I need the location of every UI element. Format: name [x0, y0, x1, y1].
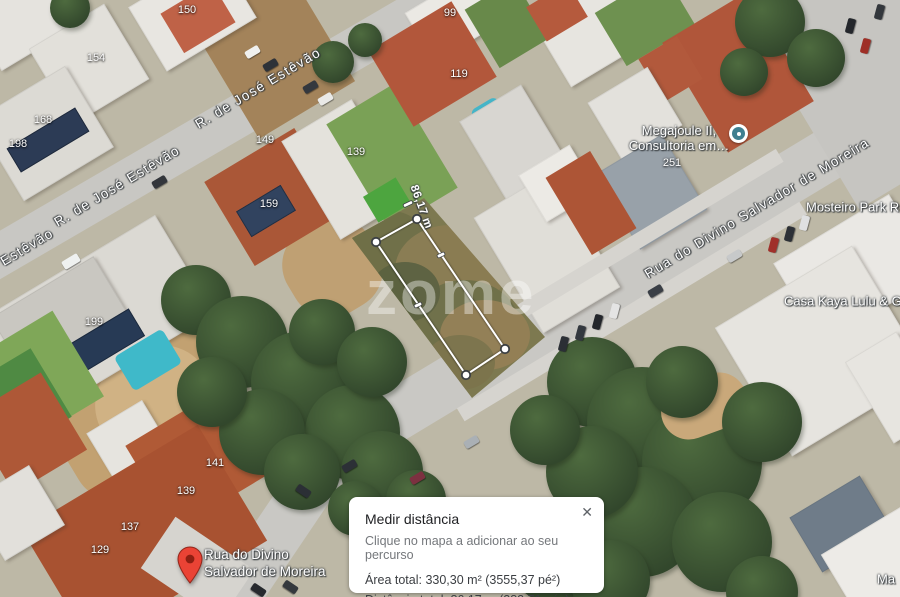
pin-address-line2: Salvador de Moreira [204, 563, 326, 580]
car [784, 226, 796, 243]
tree [787, 29, 845, 87]
panel-title: Medir distância [365, 511, 588, 527]
tree [348, 23, 382, 57]
pin-address-line1: Rua do Divino [204, 546, 326, 563]
car [463, 435, 480, 450]
photo-watermark: zome [366, 258, 536, 329]
measure-node[interactable] [462, 371, 470, 379]
distance-total-value: Distância total: 86,17 m (282,71 pés) [365, 593, 588, 597]
tree [177, 357, 247, 427]
car [768, 237, 780, 254]
tree [646, 346, 718, 418]
car [317, 92, 334, 107]
car [799, 215, 811, 232]
car [302, 80, 319, 95]
car [860, 38, 872, 55]
business-poi-icon[interactable] [729, 124, 748, 143]
tree [722, 382, 802, 462]
car [647, 284, 664, 299]
car [262, 58, 279, 73]
car [151, 175, 168, 190]
tree [50, 0, 90, 28]
tree [312, 41, 354, 83]
red-map-pin-icon[interactable] [177, 546, 203, 584]
poi-dot-core [732, 127, 745, 140]
pin-address-label: Rua do Divino Salvador de Moreira [204, 546, 326, 580]
tree [510, 395, 580, 465]
car [874, 4, 886, 21]
car [61, 253, 81, 270]
tree [720, 48, 768, 96]
measure-node[interactable] [501, 345, 509, 353]
close-icon[interactable]: ✕ [581, 505, 593, 519]
car [609, 303, 621, 320]
measure-node[interactable] [372, 238, 380, 246]
car [845, 18, 857, 35]
tree [337, 327, 407, 397]
car [244, 45, 261, 60]
map-canvas[interactable]: zome 86,17 m R. de José EstêvãoR. de Jos… [0, 0, 900, 597]
car [282, 579, 299, 594]
measure-distance-panel: ✕ Medir distância Clique no mapa a adici… [349, 497, 604, 593]
car [250, 582, 267, 597]
area-total-value: Área total: 330,30 m² (3555,37 pé²) [365, 573, 588, 587]
car [592, 314, 604, 331]
panel-subtitle: Clique no mapa a adicionar ao seu percur… [365, 534, 588, 562]
car [726, 249, 743, 264]
